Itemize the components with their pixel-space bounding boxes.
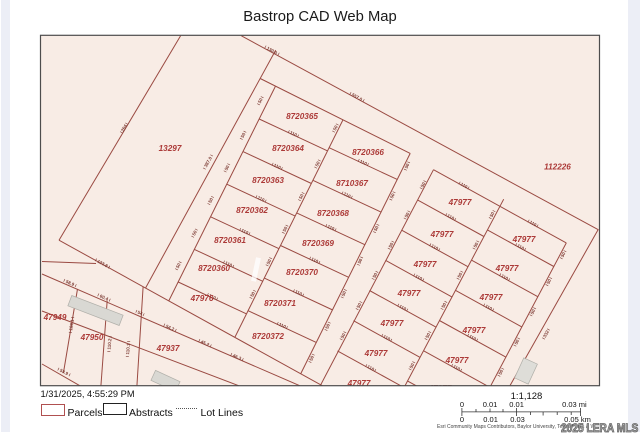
svg-text:8720360: 8720360 bbox=[198, 264, 230, 273]
svg-text:110.1: 110.1 bbox=[125, 343, 131, 355]
svg-text:47977: 47977 bbox=[495, 264, 519, 273]
svg-text:47977: 47977 bbox=[430, 230, 454, 239]
svg-text:47977: 47977 bbox=[413, 260, 437, 269]
svg-text:8720369: 8720369 bbox=[302, 239, 334, 248]
svg-text:47977: 47977 bbox=[479, 293, 503, 302]
svg-text:47977: 47977 bbox=[380, 319, 404, 328]
svg-text:8720371: 8720371 bbox=[264, 299, 296, 308]
svg-text:47977: 47977 bbox=[347, 379, 371, 388]
svg-text:47977: 47977 bbox=[397, 289, 421, 298]
svg-text:47950: 47950 bbox=[80, 333, 104, 342]
svg-text:8720363: 8720363 bbox=[252, 176, 284, 185]
svg-text:47977: 47977 bbox=[364, 349, 388, 358]
svg-text:0.03: 0.03 bbox=[510, 415, 525, 424]
svg-text:8720368: 8720368 bbox=[317, 209, 349, 218]
svg-text:47937: 47937 bbox=[156, 344, 180, 353]
svg-text:8720365: 8720365 bbox=[286, 112, 318, 121]
svg-text:47977: 47977 bbox=[462, 326, 486, 335]
svg-text:47977: 47977 bbox=[445, 356, 469, 365]
svg-text:8720361: 8720361 bbox=[214, 236, 246, 245]
svg-text:0.01: 0.01 bbox=[483, 400, 498, 409]
svg-text:110: 110 bbox=[436, 394, 445, 402]
svg-text:8720364: 8720364 bbox=[272, 144, 304, 153]
svg-text:8720372: 8720372 bbox=[252, 332, 284, 341]
svg-text:8720370: 8720370 bbox=[286, 268, 318, 277]
svg-text:110.2: 110.2 bbox=[107, 338, 113, 350]
svg-text:8710367: 8710367 bbox=[336, 179, 368, 188]
svg-text:47977: 47977 bbox=[512, 235, 536, 244]
svg-text:0.03 mi: 0.03 mi bbox=[562, 400, 587, 409]
svg-text:13297: 13297 bbox=[159, 144, 182, 153]
svg-text:47949: 47949 bbox=[43, 313, 67, 322]
svg-text:47977: 47977 bbox=[448, 198, 472, 207]
svg-text:0: 0 bbox=[460, 415, 464, 424]
svg-text:8720366: 8720366 bbox=[352, 148, 384, 157]
svg-text:0: 0 bbox=[460, 400, 464, 409]
svg-text:0.01: 0.01 bbox=[483, 415, 498, 424]
svg-text:112226: 112226 bbox=[544, 162, 571, 171]
svg-text:0.01: 0.01 bbox=[509, 400, 524, 409]
svg-text:47976: 47976 bbox=[190, 294, 214, 303]
svg-text:8720362: 8720362 bbox=[236, 206, 268, 215]
